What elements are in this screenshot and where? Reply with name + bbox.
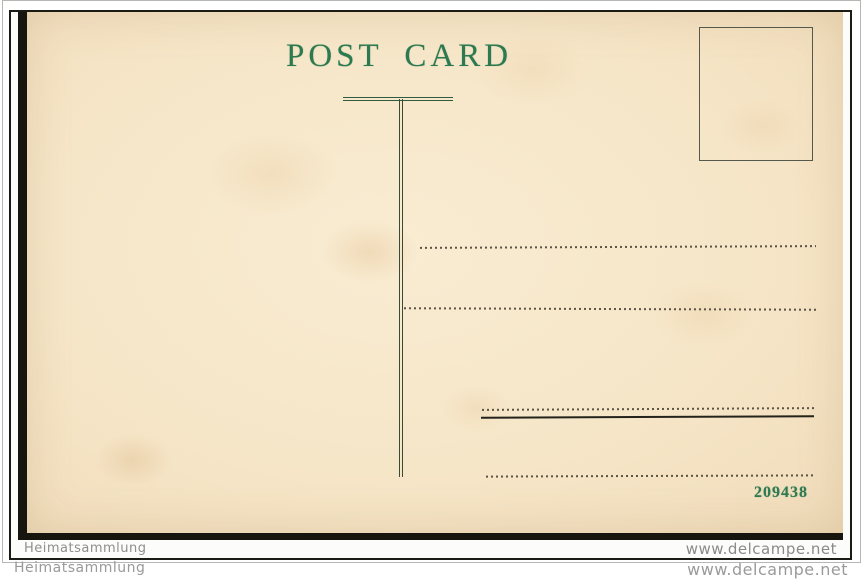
address-line-2 [404, 307, 816, 310]
watermark-seller-inner: Heimatsammlung [24, 541, 147, 556]
stamp-box [699, 27, 813, 161]
watermark-site-inner: www.delcampe.net [686, 540, 837, 558]
divider-vertical-rule [399, 99, 403, 477]
postcard-back: POST CARD 209438 [18, 12, 843, 540]
divider-top-rule [343, 97, 453, 101]
post-card-heading: POST CARD [286, 38, 512, 75]
watermark-seller-outer: Heimatsammlung [14, 560, 145, 576]
watermark-site-outer: www.delcampe.net [687, 560, 848, 579]
address-line-3-underline [481, 415, 814, 418]
listing-image-page: POST CARD 209438 Heimatsammlung www.delc… [0, 0, 863, 581]
serial-number: 209438 [754, 484, 808, 502]
address-line-4 [486, 474, 814, 477]
address-line-3 [482, 407, 816, 411]
address-line-1 [420, 245, 816, 249]
